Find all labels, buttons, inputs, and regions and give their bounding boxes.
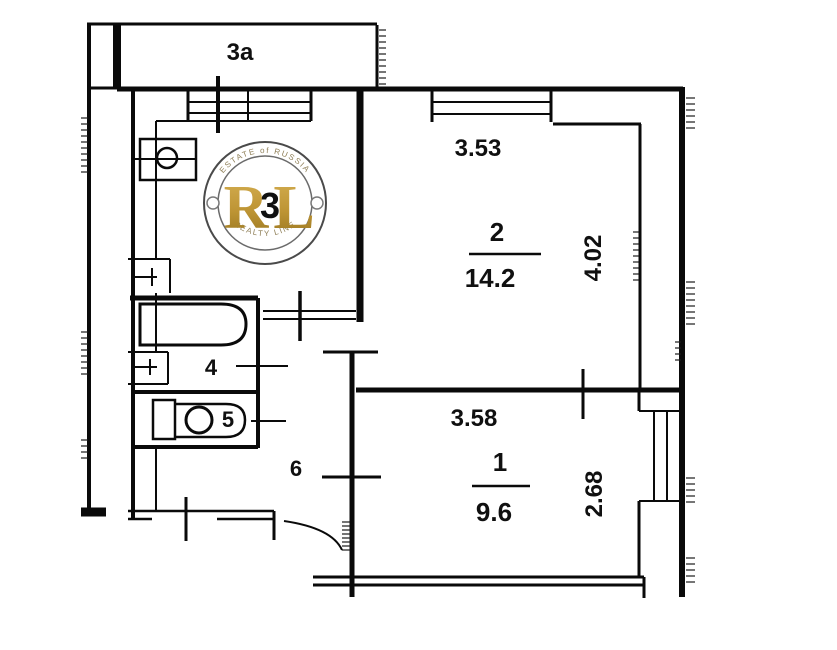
floorplan-page: 3a <box>0 0 837 650</box>
floorplan-drawing: 3a <box>0 0 837 650</box>
paper-background <box>0 0 837 650</box>
bathroom-number: 4 <box>205 355 218 380</box>
balcony-label: 3a <box>227 39 254 66</box>
room2-area-label: 14.2 <box>465 263 516 293</box>
room1-area-label: 9.6 <box>476 497 512 527</box>
watermark-left-dot-icon <box>207 197 219 209</box>
room1-depth-label: 2.68 <box>581 471 608 518</box>
room1-width-label: 3.58 <box>451 405 498 432</box>
room1-number: 1 <box>493 447 507 477</box>
watermark-monogram-l: L <box>273 174 314 242</box>
toilet-number: 5 <box>222 407 234 432</box>
hallway-number: 6 <box>290 456 302 481</box>
brand-watermark: 3 ESTATE of RUSSIA REALTY LINE R L <box>204 142 326 264</box>
room2-depth-label: 4.02 <box>580 235 607 282</box>
room2-width-label: 3.53 <box>455 135 502 162</box>
room2-number: 2 <box>490 217 504 247</box>
watermark-monogram-r: R <box>224 174 270 242</box>
